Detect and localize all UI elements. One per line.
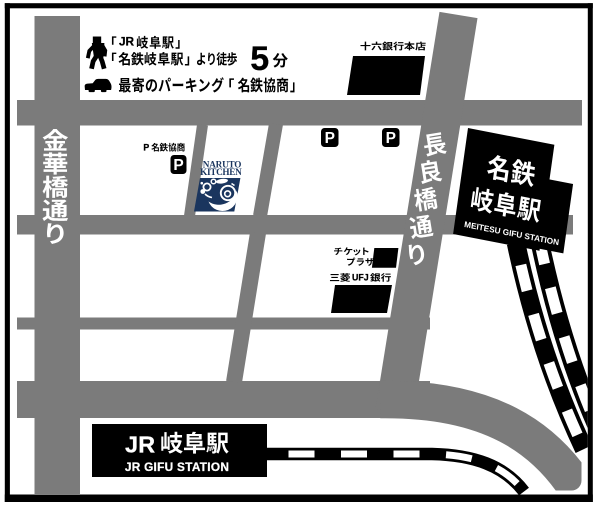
svg-text:P: P bbox=[143, 142, 149, 152]
svg-text:UFJ: UFJ bbox=[352, 273, 369, 283]
svg-text:P: P bbox=[173, 157, 183, 174]
svg-text:JR: JR bbox=[125, 431, 155, 457]
svg-text:KITCHEN: KITCHEN bbox=[200, 167, 242, 177]
svg-text:P: P bbox=[325, 130, 335, 147]
svg-text:JR GIFU STATION: JR GIFU STATION bbox=[125, 460, 229, 474]
svg-text:5: 5 bbox=[250, 40, 269, 78]
svg-text:P: P bbox=[386, 130, 396, 147]
svg-text:JR: JR bbox=[119, 35, 135, 49]
